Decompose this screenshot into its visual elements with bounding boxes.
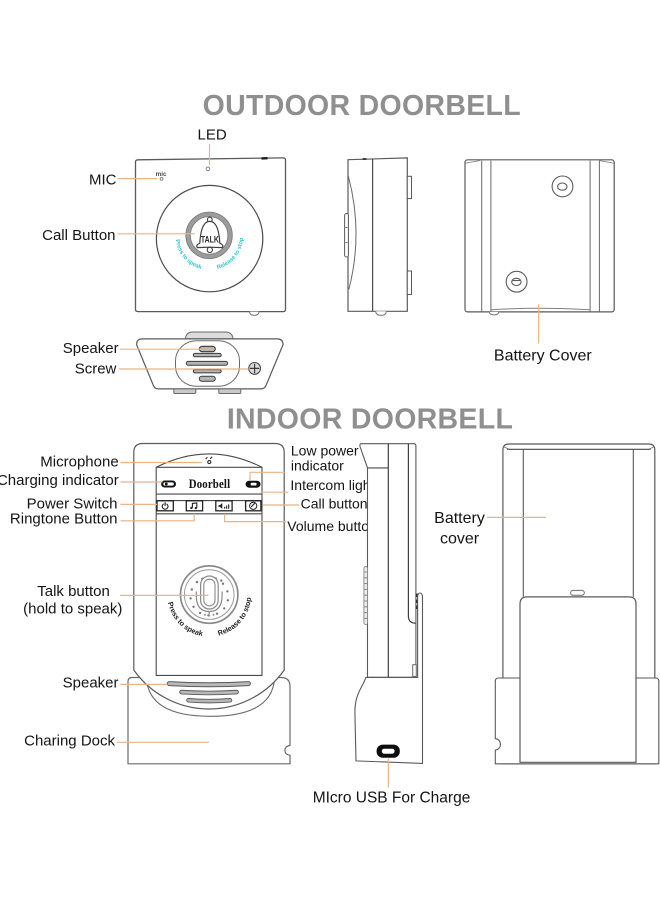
svg-text:OUTDOOR DOORBELL: OUTDOOR DOORBELL <box>203 90 521 122</box>
svg-text:INDOOR DOORBELL: INDOOR DOORBELL <box>227 404 513 436</box>
svg-text:Microphone: Microphone <box>40 454 118 471</box>
svg-text:LED: LED <box>198 126 227 143</box>
svg-text:Talk button: Talk button <box>37 583 110 600</box>
svg-text:Charing Dock: Charing Dock <box>24 733 115 750</box>
svg-text:MIC: MIC <box>89 171 117 188</box>
svg-text:MIcro USB For Charge: MIcro USB For Charge <box>313 790 471 807</box>
svg-text:Speaker: Speaker <box>63 674 119 691</box>
svg-text:indicator: indicator <box>291 458 344 474</box>
svg-text:cover: cover <box>440 531 480 548</box>
svg-text:Low power: Low power <box>291 442 359 458</box>
svg-text:Charging indicator: Charging indicator <box>0 472 119 489</box>
svg-text:Speaker: Speaker <box>63 340 119 357</box>
svg-text:TALK: TALK <box>201 235 220 245</box>
svg-text:Battery Cover: Battery Cover <box>494 347 592 364</box>
svg-text:Volume button: Volume button <box>287 518 377 534</box>
svg-text:mic: mic <box>156 171 167 178</box>
svg-text:Doorbell: Doorbell <box>189 477 231 491</box>
svg-text:Screw: Screw <box>75 361 117 378</box>
svg-text:Intercom light: Intercom light <box>290 477 374 493</box>
svg-text:(hold to speak): (hold to speak) <box>23 601 122 618</box>
svg-text:Ringtone Button: Ringtone Button <box>10 510 118 527</box>
svg-text:Call Button: Call Button <box>42 227 115 244</box>
svg-text:Battery: Battery <box>434 510 485 527</box>
